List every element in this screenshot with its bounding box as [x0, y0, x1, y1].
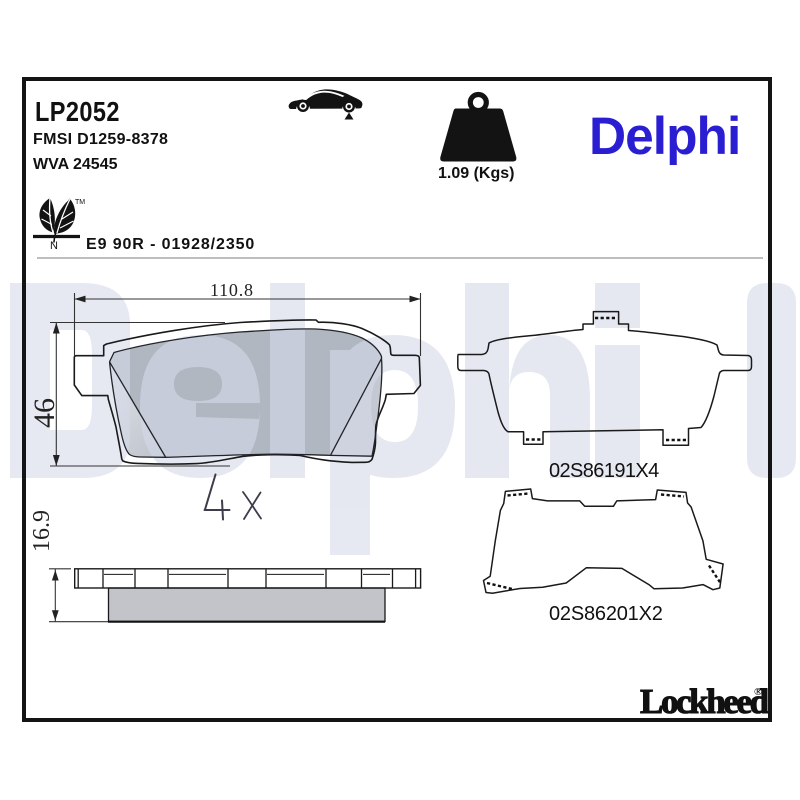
svg-text:N: N	[50, 240, 58, 252]
svg-text:TM: TM	[75, 199, 85, 206]
